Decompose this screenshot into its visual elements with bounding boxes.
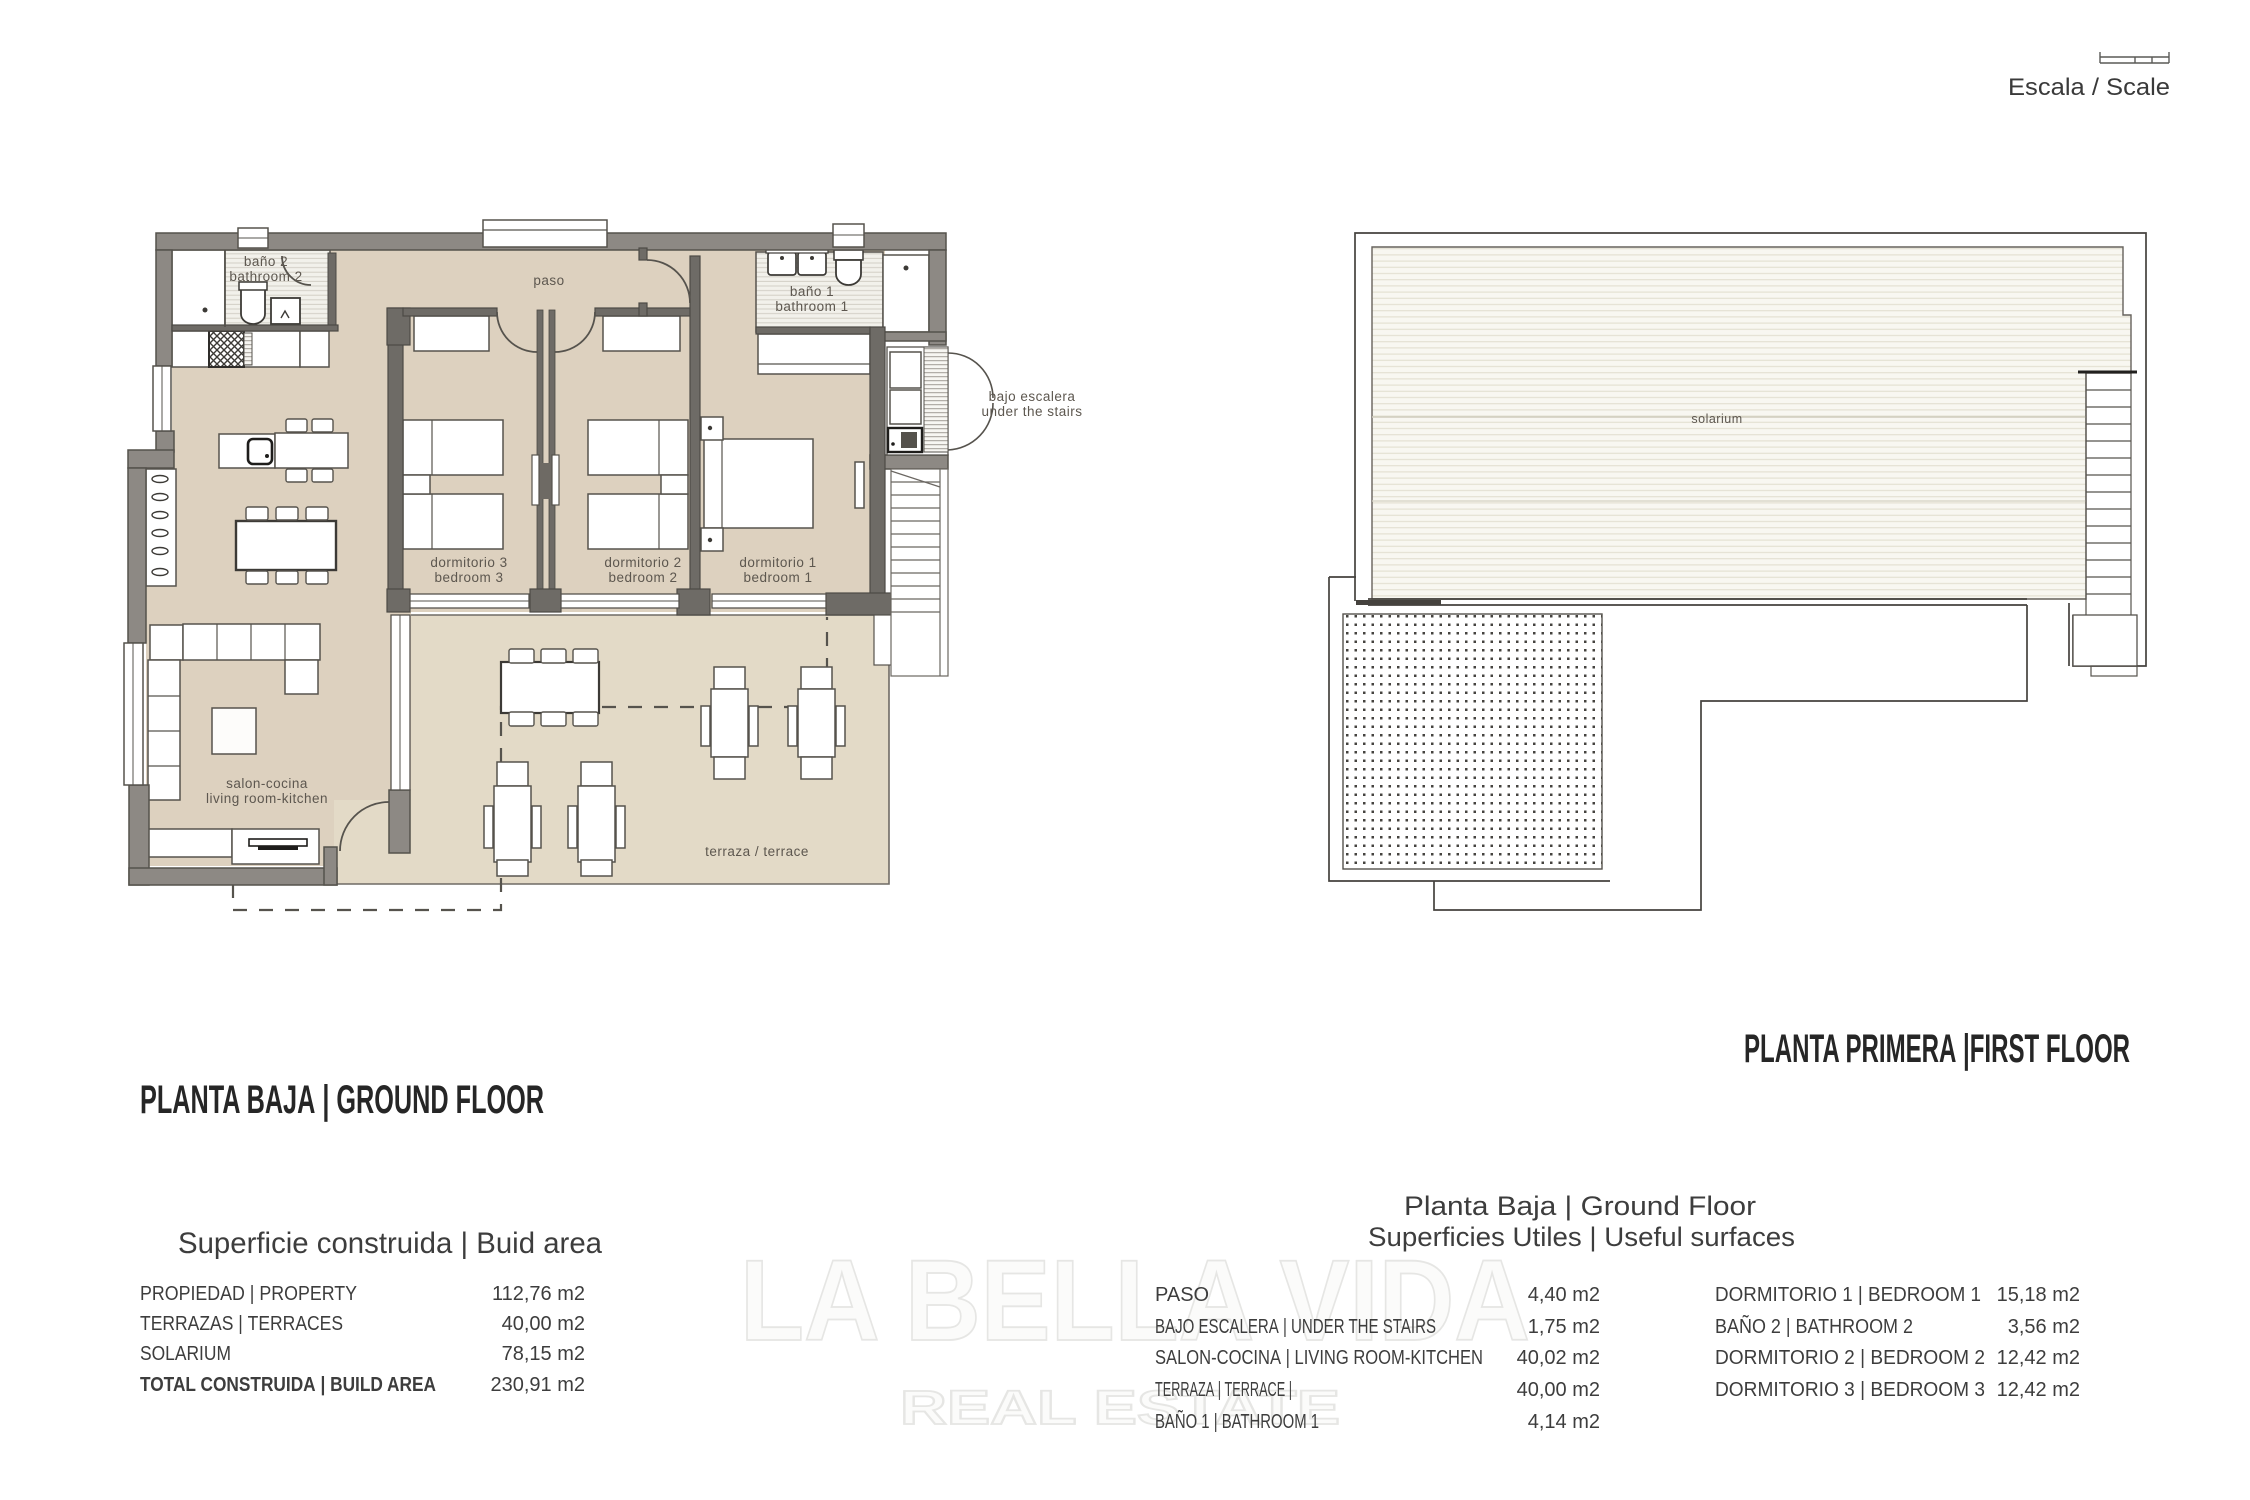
svg-text:Superficies Utiles | Useful su: Superficies Utiles | Useful surfaces bbox=[1368, 1222, 1795, 1252]
svg-text:BAJO ESCALERA | UNDER THE STAI: BAJO ESCALERA | UNDER THE STAIRS bbox=[1155, 1316, 1436, 1338]
svg-text:terraza / terrace: terraza / terrace bbox=[705, 844, 809, 859]
svg-text:230,91 m2: 230,91 m2 bbox=[490, 1374, 585, 1396]
svg-text:12,42 m2: 12,42 m2 bbox=[1997, 1347, 2080, 1369]
svg-text:Escala / Scale: Escala / Scale bbox=[2008, 74, 2170, 101]
svg-text:Superficie construida | Buid a: Superficie construida | Buid area bbox=[178, 1227, 602, 1260]
svg-text:bedroom 3: bedroom 3 bbox=[434, 570, 503, 585]
svg-text:BAÑO 1 | BATHROOM 1: BAÑO 1 | BATHROOM 1 bbox=[1155, 1409, 1319, 1433]
svg-text:TOTAL CONSTRUIDA | BUILD AREA: TOTAL CONSTRUIDA | BUILD AREA bbox=[140, 1374, 436, 1396]
svg-text:solarium: solarium bbox=[1691, 412, 1742, 426]
svg-text:bathroom 2: bathroom 2 bbox=[229, 269, 302, 284]
svg-text:DORMITORIO 3 | BEDROOM 3: DORMITORIO 3 | BEDROOM 3 bbox=[1715, 1379, 1985, 1401]
svg-text:TERRAZAS | TERRACES: TERRAZAS | TERRACES bbox=[140, 1313, 343, 1335]
svg-text:DORMITORIO 1 | BEDROOM 1: DORMITORIO 1 | BEDROOM 1 bbox=[1715, 1284, 1981, 1306]
svg-text:PASO: PASO bbox=[1155, 1284, 1209, 1306]
svg-text:SALON-COCINA | LIVING ROOM-KIT: SALON-COCINA | LIVING ROOM-KITCHEN bbox=[1155, 1347, 1483, 1369]
svg-text:SOLARIUM: SOLARIUM bbox=[140, 1343, 231, 1365]
svg-text:dormitorio 3: dormitorio 3 bbox=[430, 555, 507, 570]
svg-text:12,42 m2: 12,42 m2 bbox=[1997, 1379, 2080, 1401]
svg-text:1,75 m2: 1,75 m2 bbox=[1528, 1316, 1600, 1338]
svg-text:dormitorio 1: dormitorio 1 bbox=[739, 555, 816, 570]
svg-text:bajo escalera: bajo escalera bbox=[989, 389, 1076, 404]
svg-text:bedroom 2: bedroom 2 bbox=[608, 570, 677, 585]
svg-text:bedroom 1: bedroom 1 bbox=[743, 570, 812, 585]
svg-text:salon-cocina: salon-cocina bbox=[226, 776, 308, 791]
svg-text:3,56 m2: 3,56 m2 bbox=[2008, 1316, 2080, 1338]
svg-text:LA BELLA VIDA: LA BELLA VIDA bbox=[740, 1237, 1530, 1365]
svg-text:TERRAZA | TERRACE |: TERRAZA | TERRACE | bbox=[1155, 1379, 1292, 1401]
svg-text:40,02 m2: 40,02 m2 bbox=[1517, 1347, 1600, 1369]
svg-text:112,76 m2: 112,76 m2 bbox=[492, 1283, 585, 1305]
svg-text:78,15 m2: 78,15 m2 bbox=[502, 1343, 585, 1365]
svg-text:Planta Baja | Ground Floor: Planta Baja | Ground Floor bbox=[1404, 1191, 1756, 1221]
svg-text:under the stairs: under the stairs bbox=[981, 404, 1082, 419]
svg-text:PLANTA PRIMERA |FIRST FLOOR: PLANTA PRIMERA |FIRST FLOOR bbox=[1744, 1027, 2130, 1071]
svg-text:40,00 m2: 40,00 m2 bbox=[1517, 1379, 1600, 1401]
svg-text:4,14 m2: 4,14 m2 bbox=[1528, 1411, 1600, 1433]
svg-text:DORMITORIO 2 | BEDROOM 2: DORMITORIO 2 | BEDROOM 2 bbox=[1715, 1347, 1985, 1369]
svg-text:4,40 m2: 4,40 m2 bbox=[1528, 1284, 1600, 1306]
svg-text:dormitorio 2: dormitorio 2 bbox=[604, 555, 681, 570]
svg-text:BAÑO 2 | BATHROOM 2: BAÑO 2 | BATHROOM 2 bbox=[1715, 1314, 1913, 1338]
svg-text:bathroom 1: bathroom 1 bbox=[775, 299, 848, 314]
svg-text:15,18 m2: 15,18 m2 bbox=[1997, 1284, 2080, 1306]
svg-text:PLANTA BAJA | GROUND FLOOR: PLANTA BAJA | GROUND FLOOR bbox=[140, 1078, 544, 1122]
svg-text:PROPIEDAD | PROPERTY: PROPIEDAD | PROPERTY bbox=[140, 1283, 357, 1305]
svg-text:40,00 m2: 40,00 m2 bbox=[502, 1313, 585, 1335]
svg-text:living room-kitchen: living room-kitchen bbox=[206, 791, 328, 806]
svg-text:paso: paso bbox=[533, 273, 564, 288]
svg-text:baño 1: baño 1 bbox=[790, 284, 834, 299]
svg-text:baño 2: baño 2 bbox=[244, 254, 288, 269]
